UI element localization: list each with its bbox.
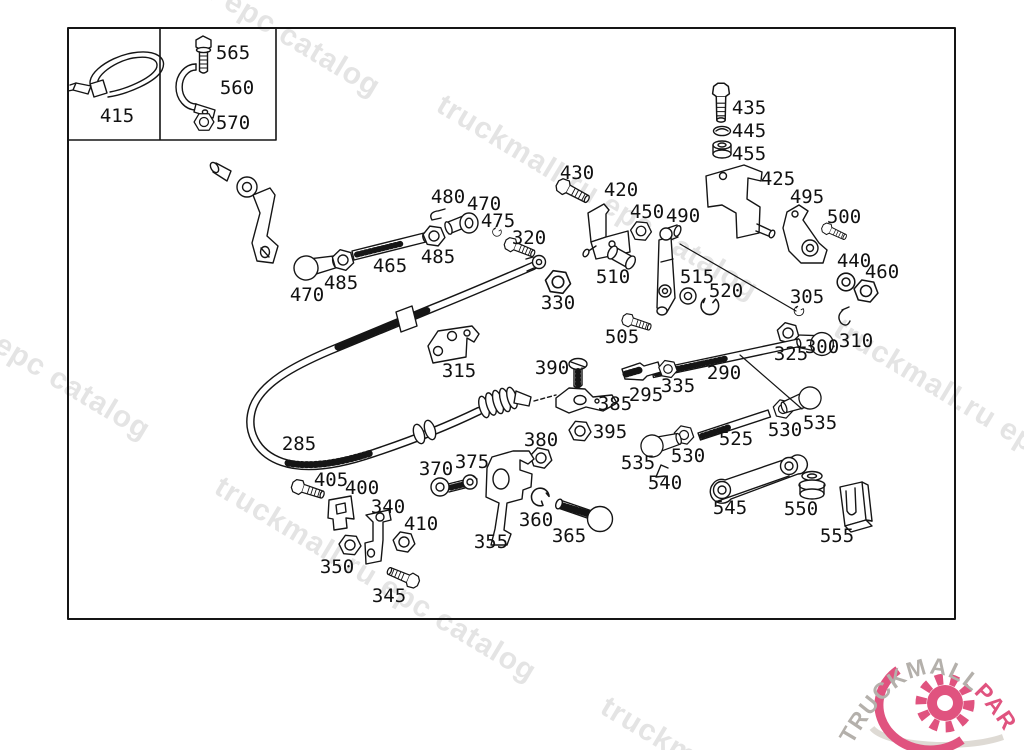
part-label-395: 395 <box>593 421 627 443</box>
part-label-450: 450 <box>630 201 664 223</box>
part-label-325: 325 <box>774 343 808 365</box>
part-label-550: 550 <box>784 498 818 520</box>
part-label-290: 290 <box>707 362 741 384</box>
part-label-320: 320 <box>512 227 546 249</box>
part-label-385: 385 <box>598 393 632 415</box>
part-label-layer: 4155655605704354454554304204254955004804… <box>0 0 1024 750</box>
part-label-535: 535 <box>621 452 655 474</box>
part-label-545: 545 <box>713 497 747 519</box>
part-label-560: 560 <box>220 77 254 99</box>
part-label-405: 405 <box>314 469 348 491</box>
part-label-305: 305 <box>790 286 824 308</box>
part-label-530: 530 <box>671 445 705 467</box>
part-label-300: 300 <box>805 336 839 358</box>
part-label-555: 555 <box>820 525 854 547</box>
parts-diagram-page: truckmall.ru epc catalogtruckmall.ru epc… <box>0 0 1024 750</box>
part-label-475: 475 <box>481 210 515 232</box>
part-label-530: 530 <box>768 419 802 441</box>
part-label-345: 345 <box>372 585 406 607</box>
part-label-565: 565 <box>216 42 250 64</box>
svg-text:TRUCKMALLPARTS: TRUCKMALLPARTS <box>834 640 1023 748</box>
part-label-480: 480 <box>431 186 465 208</box>
part-label-285: 285 <box>282 433 316 455</box>
part-label-370: 370 <box>419 458 453 480</box>
part-label-350: 350 <box>320 556 354 578</box>
part-label-525: 525 <box>719 428 753 450</box>
part-label-490: 490 <box>666 205 700 227</box>
part-label-495: 495 <box>790 186 824 208</box>
part-label-365: 365 <box>552 525 586 547</box>
part-label-535: 535 <box>803 412 837 434</box>
part-label-465: 465 <box>373 255 407 277</box>
part-label-315: 315 <box>442 360 476 382</box>
part-label-435: 435 <box>732 97 766 119</box>
part-label-570: 570 <box>216 112 250 134</box>
part-label-500: 500 <box>827 206 861 228</box>
part-label-430: 430 <box>560 162 594 184</box>
logo-text-gray: TRUCKMALL <box>834 652 986 747</box>
part-label-390: 390 <box>535 357 569 379</box>
part-label-470: 470 <box>290 284 324 306</box>
part-label-380: 380 <box>524 429 558 451</box>
part-label-460: 460 <box>865 261 899 283</box>
part-label-485: 485 <box>421 246 455 268</box>
part-label-360: 360 <box>519 509 553 531</box>
part-label-485: 485 <box>324 272 358 294</box>
brand-logo: TRUCKMALLPARTS <box>834 640 1024 750</box>
part-label-505: 505 <box>605 326 639 348</box>
part-label-335: 335 <box>661 375 695 397</box>
part-label-540: 540 <box>648 472 682 494</box>
part-label-410: 410 <box>404 513 438 535</box>
part-label-355: 355 <box>474 531 508 553</box>
part-label-445: 445 <box>732 120 766 142</box>
part-label-520: 520 <box>709 280 743 302</box>
part-label-310: 310 <box>839 330 873 352</box>
part-label-455: 455 <box>732 143 766 165</box>
part-label-420: 420 <box>604 179 638 201</box>
part-label-510: 510 <box>596 266 630 288</box>
part-label-340: 340 <box>371 496 405 518</box>
part-label-415: 415 <box>100 105 134 127</box>
part-label-330: 330 <box>541 292 575 314</box>
part-label-295: 295 <box>629 384 663 406</box>
part-label-375: 375 <box>455 451 489 473</box>
